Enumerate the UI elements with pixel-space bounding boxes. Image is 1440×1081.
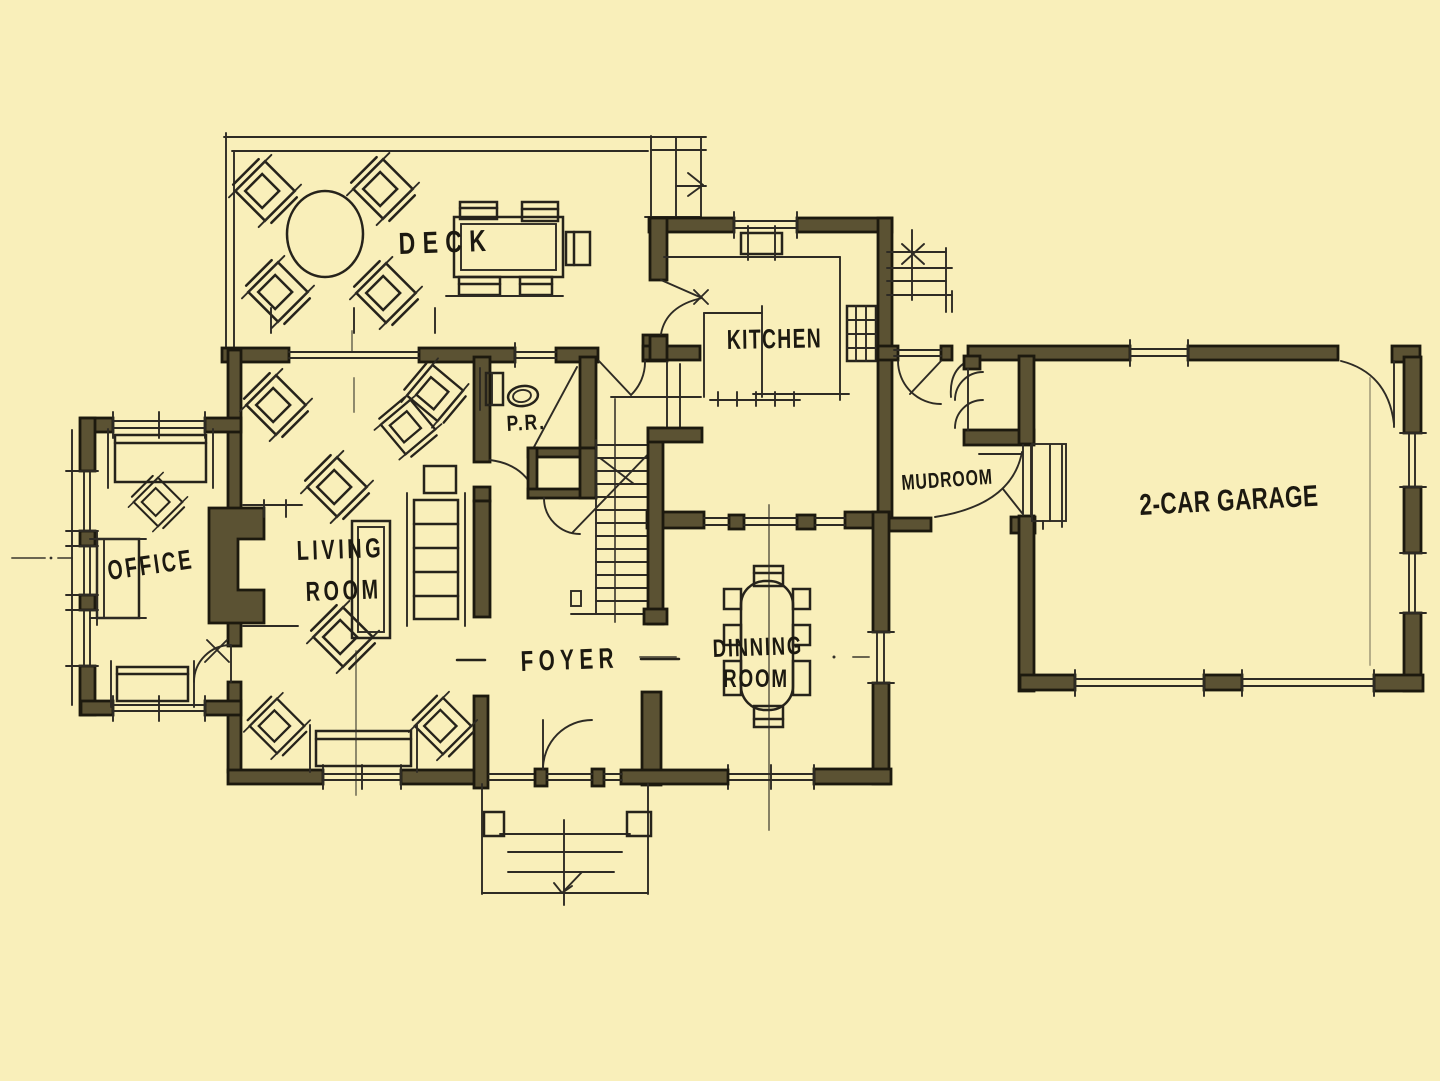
svg-text:FOYER: FOYER: [520, 642, 619, 678]
svg-text:ROOM: ROOM: [723, 664, 789, 692]
svg-text:DINNING: DINNING: [712, 631, 803, 663]
svg-text:KITCHEN: KITCHEN: [727, 323, 823, 356]
svg-text:DECK: DECK: [398, 224, 494, 261]
svg-text:P.R.: P.R.: [506, 410, 546, 436]
svg-text:ROOM: ROOM: [305, 574, 382, 608]
svg-text:LIVING: LIVING: [296, 533, 385, 567]
